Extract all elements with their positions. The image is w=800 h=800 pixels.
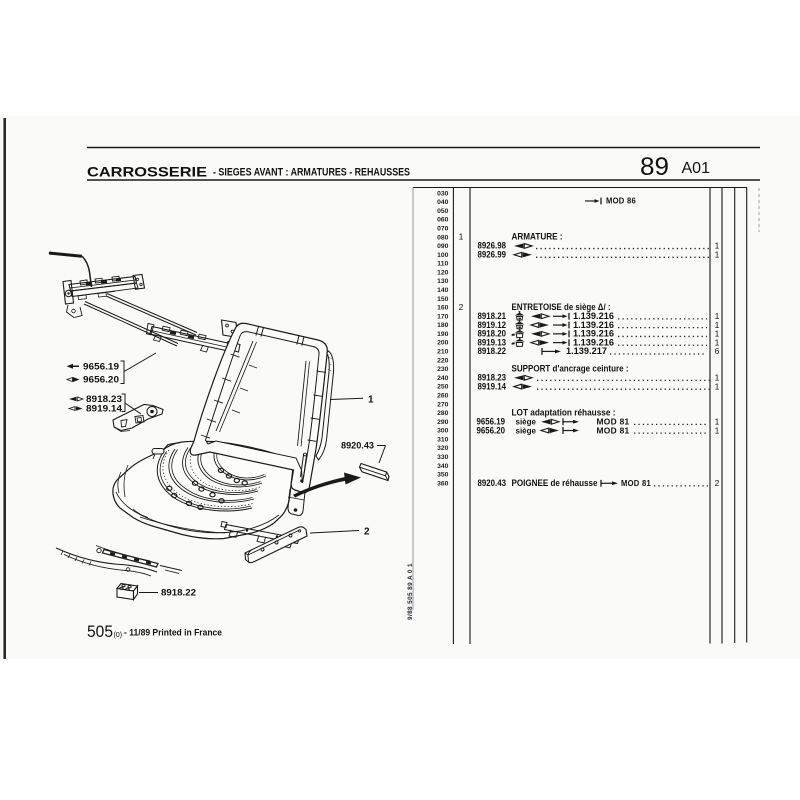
svg-text:180: 180 <box>437 323 449 329</box>
svg-text:100: 100 <box>437 253 449 259</box>
svg-text:9656.19: 9656.19 <box>83 362 119 372</box>
svg-text:A01: A01 <box>682 160 711 177</box>
svg-text:050: 050 <box>437 209 449 215</box>
svg-text:1: 1 <box>715 425 720 435</box>
svg-text:130: 130 <box>437 279 449 285</box>
svg-text:6: 6 <box>715 346 720 356</box>
svg-text:150: 150 <box>437 297 449 303</box>
svg-text:8918.22: 8918.22 <box>161 588 196 598</box>
svg-text:160: 160 <box>437 306 449 312</box>
svg-text:280: 280 <box>437 411 449 417</box>
svg-text:330: 330 <box>437 455 449 461</box>
svg-text:2: 2 <box>459 302 464 312</box>
svg-text:8926.99: 8926.99 <box>478 250 507 260</box>
svg-text:300: 300 <box>437 429 449 435</box>
svg-text:SUPPORT d'ancrage ceinture :: SUPPORT d'ancrage ceinture : <box>512 364 629 374</box>
svg-text:siège: siège <box>516 425 537 435</box>
svg-text:120: 120 <box>437 270 449 276</box>
svg-text:220: 220 <box>437 358 449 364</box>
svg-text:2: 2 <box>364 527 370 538</box>
svg-text:290: 290 <box>437 420 449 426</box>
svg-text:270: 270 <box>437 402 449 408</box>
svg-text:MOD 81: MOD 81 <box>621 479 651 488</box>
svg-text:MOD 81: MOD 81 <box>597 426 630 435</box>
svg-text:190: 190 <box>437 332 449 338</box>
svg-text:ARMATURE :: ARMATURE : <box>512 232 563 242</box>
svg-text:1: 1 <box>459 232 464 242</box>
svg-text:090: 090 <box>437 244 449 250</box>
svg-text:200: 200 <box>437 341 449 347</box>
svg-text:360: 360 <box>437 481 449 487</box>
svg-text:89: 89 <box>640 153 669 181</box>
svg-text:1: 1 <box>715 250 720 260</box>
svg-text:240: 240 <box>437 376 449 382</box>
svg-text:(0): (0) <box>114 632 123 639</box>
svg-text:250: 250 <box>437 385 449 391</box>
svg-text:210: 210 <box>437 350 449 356</box>
svg-text:8918.22: 8918.22 <box>478 346 507 356</box>
svg-text:CARROSSERIE: CARROSSERIE <box>87 164 207 180</box>
svg-text:260: 260 <box>437 393 449 399</box>
svg-text:- SIEGES AVANT : ARMATURES - R: - SIEGES AVANT : ARMATURES - REHAUSSES <box>213 167 410 179</box>
svg-text:1: 1 <box>715 381 720 391</box>
svg-text:9656.20: 9656.20 <box>83 375 119 385</box>
svg-text:2: 2 <box>715 478 720 488</box>
svg-text:8918.23: 8918.23 <box>86 394 122 404</box>
svg-text:9656.20: 9656.20 <box>477 425 506 435</box>
svg-text:MOD 81: MOD 81 <box>597 418 630 427</box>
svg-text:1: 1 <box>368 395 374 406</box>
svg-text:110: 110 <box>437 262 449 268</box>
svg-text:340: 340 <box>437 464 449 470</box>
svg-text:505: 505 <box>87 622 113 641</box>
svg-text:170: 170 <box>437 314 449 320</box>
svg-text:8919.14: 8919.14 <box>86 404 123 414</box>
svg-text:MOD 86: MOD 86 <box>606 197 636 206</box>
svg-text:8920.43: 8920.43 <box>478 478 507 488</box>
svg-text:030: 030 <box>437 191 449 197</box>
svg-text:8920.43: 8920.43 <box>341 441 374 451</box>
svg-text:040: 040 <box>437 200 449 206</box>
svg-text:140: 140 <box>437 288 449 294</box>
svg-text:060: 060 <box>437 218 449 224</box>
svg-text:- 11/89 Printed in France: - 11/89 Printed in France <box>124 628 222 638</box>
svg-text:320: 320 <box>437 446 449 452</box>
svg-text:310: 310 <box>437 437 449 443</box>
svg-text:350: 350 <box>437 473 449 479</box>
svg-text:080: 080 <box>437 235 449 241</box>
svg-text:POIGNEE de réhausse: POIGNEE de réhausse <box>512 478 598 488</box>
svg-text:1.139.217: 1.139.217 <box>566 346 607 356</box>
svg-text:8919.14: 8919.14 <box>478 381 507 391</box>
svg-text:9/88 505 89 A 0 1: 9/88 505 89 A 0 1 <box>407 563 414 620</box>
svg-text:230: 230 <box>437 367 449 373</box>
svg-text:070: 070 <box>437 226 449 232</box>
